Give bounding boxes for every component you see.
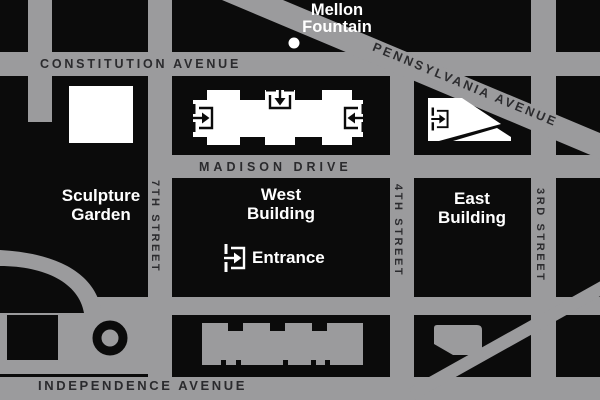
independence-avenue-label: INDEPENDENCE AVENUE [38, 378, 247, 393]
mellon-fountain-label-line2: Fountain [287, 19, 387, 36]
constitution-avenue-label: CONSTITUTION AVENUE [40, 57, 241, 71]
sculpture-garden-label-line1: Sculpture [51, 187, 151, 206]
small-building-footprint [434, 325, 482, 355]
third-street-label: 3RD STREET [534, 188, 546, 282]
nga-area-map: CONSTITUTION AVENUE PENNSYLVANIA AVENUE … [0, 0, 600, 400]
mellon-fountain-label-line1: Mellon [287, 2, 387, 19]
west-building-label-line1: West [221, 186, 341, 205]
enter-left-icon [341, 103, 365, 133]
west-building-label-line2: Building [221, 205, 341, 224]
enter-right-icon [224, 243, 248, 273]
east-building-label-line2: Building [412, 209, 532, 228]
natural-history-building-footprint [69, 86, 133, 143]
plaza-block-shape [7, 315, 58, 360]
east-building-label: East Building [412, 190, 532, 227]
enter-down-icon [265, 88, 295, 112]
madison-drive-label: MADISON DRIVE [199, 160, 352, 174]
west-building-label: West Building [221, 186, 341, 223]
curved-drive-road [0, 250, 102, 313]
sculpture-garden-label-line2: Garden [51, 206, 151, 225]
fountain-dot-icon [289, 38, 300, 49]
fourth-street-label: 4TH STREET [392, 184, 404, 277]
enter-right-icon [192, 103, 216, 133]
enter-right-icon [431, 107, 451, 132]
entrance-label: Entrance [252, 249, 325, 268]
mellon-fountain-label: Mellon Fountain [287, 2, 387, 36]
east-building-label-line1: East [412, 190, 532, 209]
sculpture-garden-label: Sculpture Garden [51, 187, 151, 224]
castle-building-footprint [202, 323, 363, 365]
